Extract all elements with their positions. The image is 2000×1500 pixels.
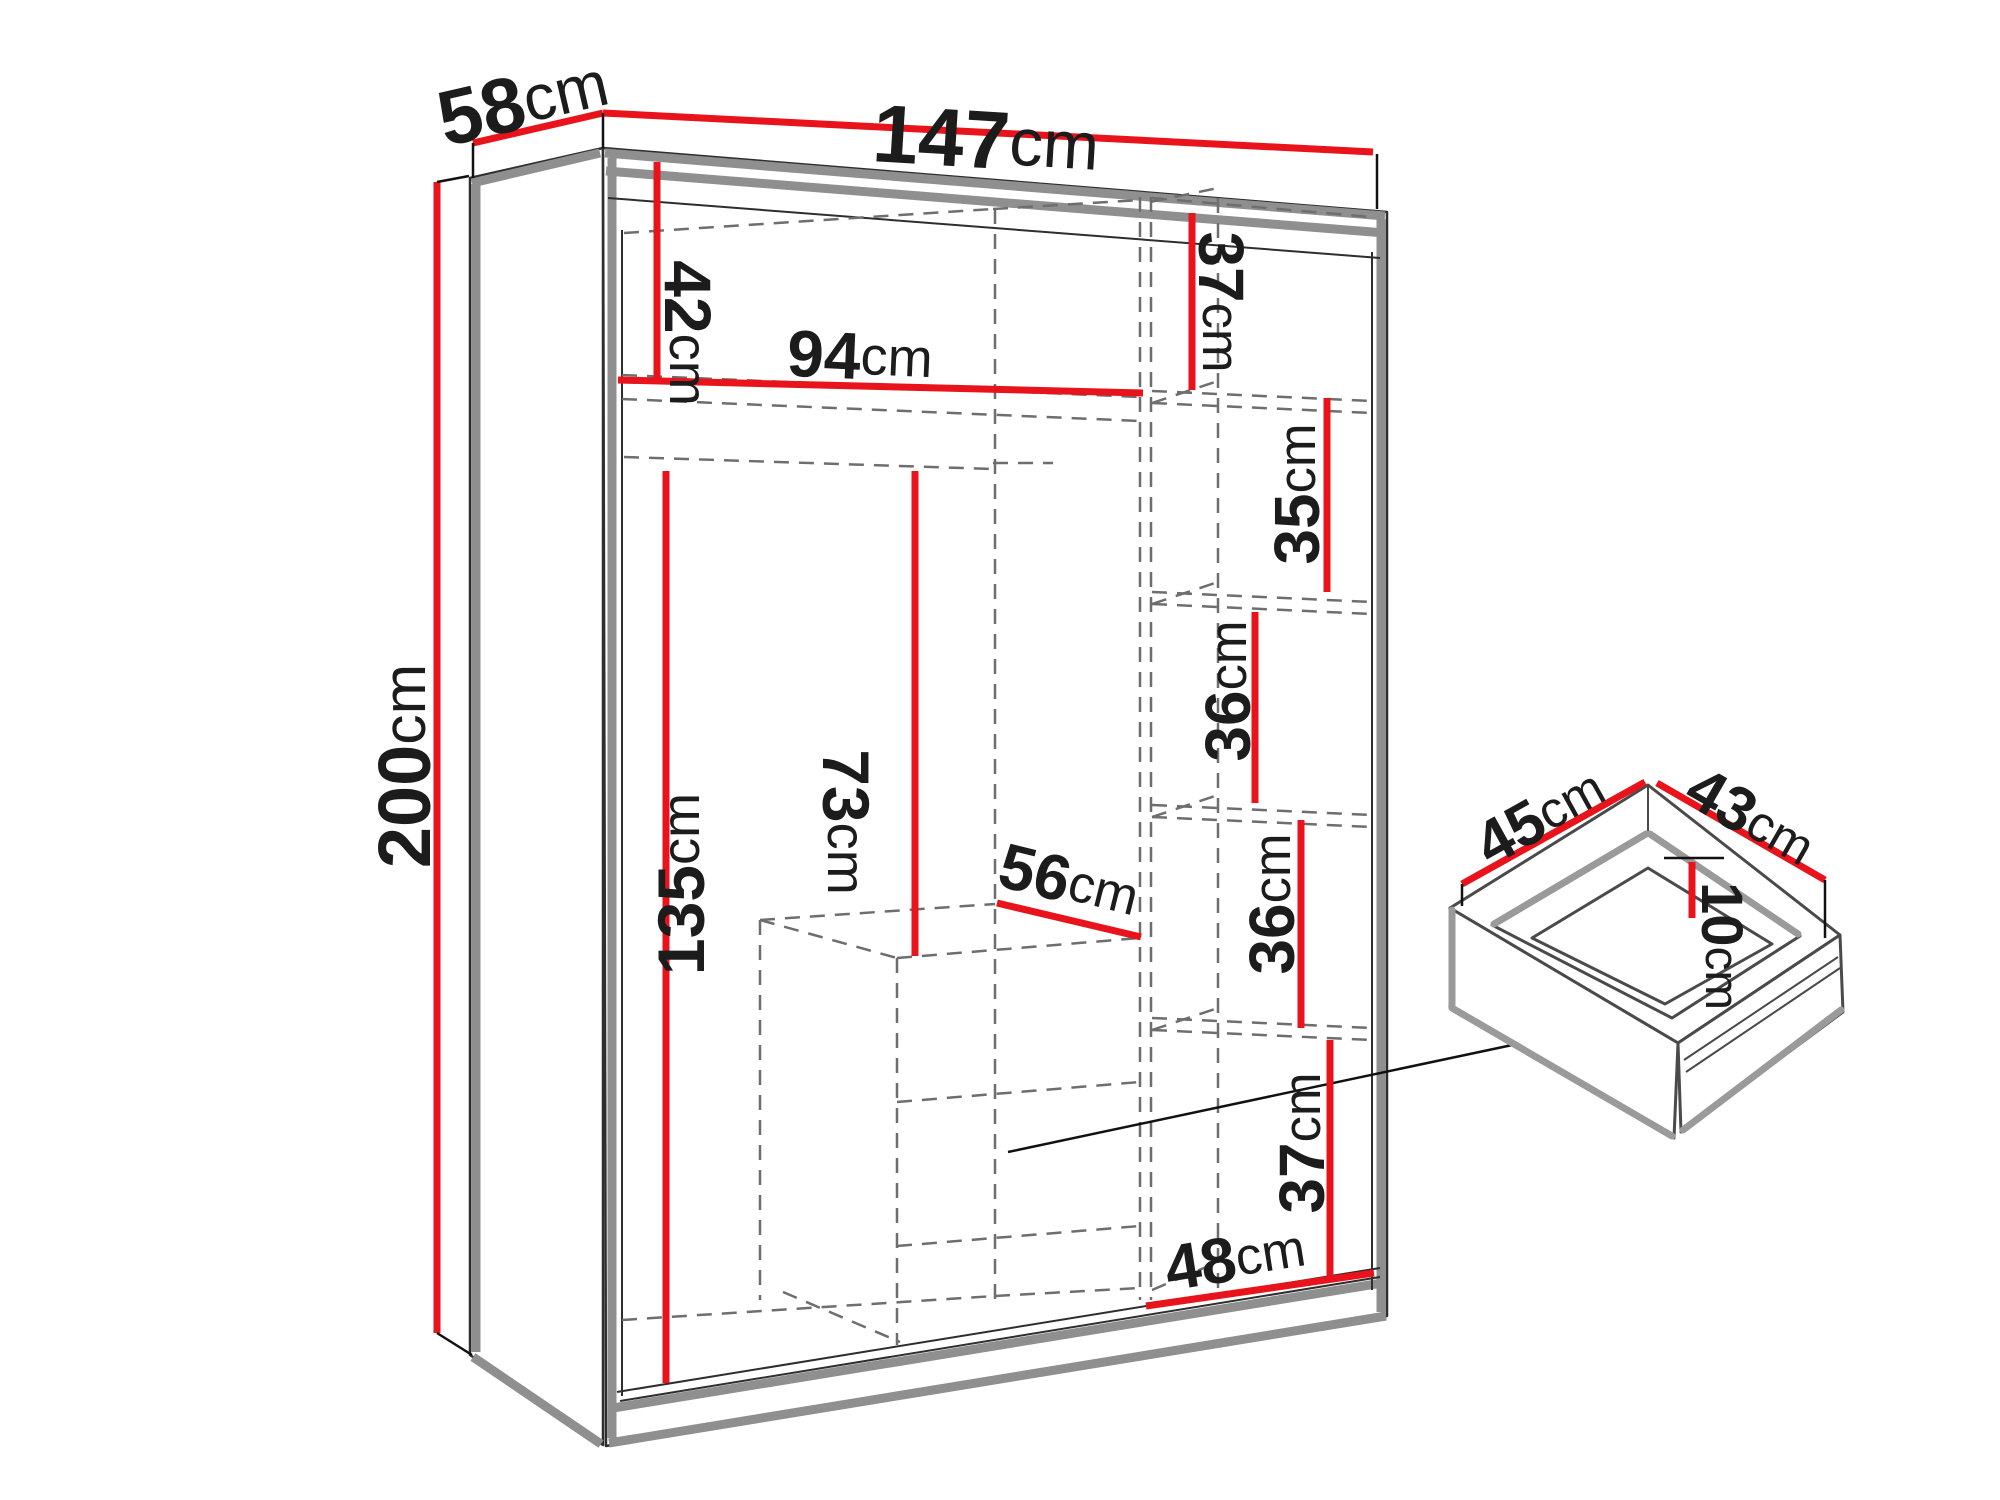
dim-label-37-bottom: 37cm bbox=[1266, 1072, 1338, 1213]
wardrobe-left-side-face bbox=[470, 148, 603, 1445]
dim-label-42: 42cm bbox=[651, 260, 725, 406]
tick-200-top bbox=[437, 176, 469, 182]
dim-label-width-147: 147cm bbox=[870, 88, 1102, 193]
tick-200-bottom bbox=[437, 1333, 472, 1355]
dim-label-36-lower: 36cm bbox=[1236, 833, 1308, 974]
dim-label-135: 135cm bbox=[644, 793, 718, 975]
diagram-canvas: 58cm 147cm 200cm 42cm 94cm 37cm 35cm 36c… bbox=[0, 0, 2000, 1500]
dim-label-drawer-10: 10cm bbox=[1690, 882, 1755, 1010]
dim-label-73: 73cm bbox=[809, 749, 883, 895]
dim-label-depth-58: 58cm bbox=[429, 39, 616, 163]
dim-label-height-200: 200cm bbox=[363, 664, 446, 868]
dim-label-94: 94cm bbox=[786, 316, 935, 396]
dim-label-37-top: 37cm bbox=[1185, 231, 1257, 372]
dim-label-35: 35cm bbox=[1261, 423, 1333, 564]
dim-label-36-upper: 36cm bbox=[1192, 620, 1264, 761]
wardrobe-dimension-diagram: 58cm 147cm 200cm 42cm 94cm 37cm 35cm 36c… bbox=[0, 0, 2000, 1500]
